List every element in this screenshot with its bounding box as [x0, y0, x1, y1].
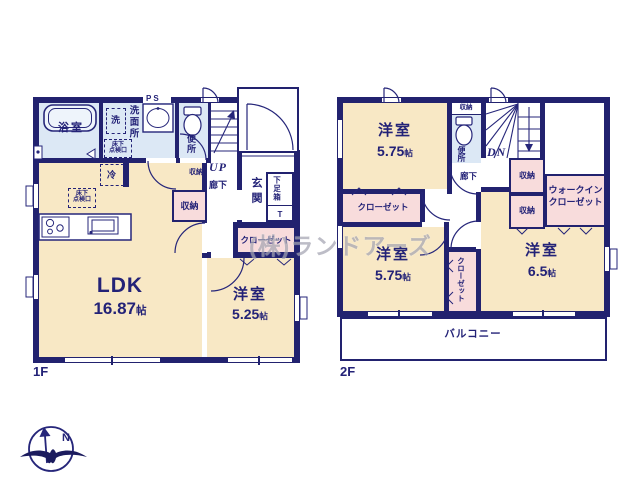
watermark: (株)ランドアーズ — [249, 227, 432, 261]
wall — [444, 222, 449, 317]
toilet-label-2f: 便所 — [457, 146, 465, 162]
bedroom-nw-size: 5.75帖 — [345, 144, 445, 158]
window — [489, 97, 508, 103]
stairs-up-label: UP — [209, 161, 227, 173]
floor-label-2f: 2F — [340, 365, 355, 378]
window — [33, 184, 39, 208]
underfloor-hatch-label: 床下点検口 — [68, 191, 96, 203]
door-opening — [237, 190, 242, 220]
wall — [99, 103, 103, 158]
window — [604, 247, 610, 271]
wic-label-line1: ウォークイン — [545, 186, 606, 195]
window — [65, 357, 160, 363]
hallway-label-2f: 廊下 — [460, 172, 477, 181]
storage-a-label: 収納 — [509, 172, 545, 180]
shoebox-label: 下足箱 — [273, 176, 281, 202]
understairs-storage-label: 収納 — [189, 169, 203, 176]
door-opening — [146, 158, 176, 163]
door-opening — [211, 252, 233, 258]
hallway-label-1f: 廊下 — [209, 181, 227, 190]
washroom-label: 洗面所 — [128, 105, 138, 140]
door-opening — [180, 158, 206, 163]
ps-label: PS — [146, 95, 161, 103]
underfloor-hatch-label: 床下点検口 — [104, 142, 132, 154]
bird-logo-icon — [20, 449, 87, 463]
bedroom-nw-name: 洋室 — [345, 123, 445, 138]
bedroom-1f-size: 5.25帖 — [200, 307, 300, 321]
wic-label-line2: クローゼット — [545, 198, 606, 207]
bedroom-se-name: 洋室 — [492, 243, 592, 258]
floor-label-1f: 1F — [33, 365, 48, 378]
ldk-size: 16.87帖 — [50, 300, 190, 317]
toilet-label-1f: 便所 — [186, 134, 195, 154]
stairs-down-label: DN — [487, 146, 506, 158]
wall — [33, 97, 39, 363]
window — [337, 120, 343, 158]
window — [33, 275, 39, 299]
floorplan-canvas: N 浴室 洗 洗面所 PS 床下点検口 便所 UP 収納 廊下 玄関 下足箱 T… — [0, 0, 640, 480]
balcony-label: バルコニー — [373, 329, 573, 340]
entrance-porch — [237, 87, 299, 153]
wall — [447, 103, 452, 189]
storage-b-label: 収納 — [509, 207, 545, 215]
bedroom-se-size: 6.5帖 — [492, 264, 592, 278]
closet-mid-label: クローゼット — [457, 257, 465, 302]
wall — [175, 103, 179, 158]
wall — [481, 103, 486, 158]
window — [382, 97, 401, 103]
window — [228, 357, 292, 363]
wall — [208, 103, 211, 158]
stairs-up-icon — [211, 110, 237, 153]
compass-icon: N — [20, 427, 87, 471]
washer-label: 洗 — [111, 116, 120, 125]
storage-label-1f: 収納 — [172, 202, 207, 211]
wall — [476, 247, 481, 311]
bedroom-1f-name: 洋室 — [200, 287, 300, 302]
storage-over-toilet-label: 収納 — [452, 105, 480, 112]
bedroom-sw-size: 5.75帖 — [343, 268, 443, 282]
shoebox-t-label: T — [266, 211, 294, 219]
bathroom-label: 浴室 — [49, 123, 93, 134]
door-opening — [476, 222, 481, 249]
window — [201, 97, 219, 103]
ldk-name: LDK — [50, 275, 190, 296]
compass-north-label: N — [62, 432, 70, 444]
closet-nw-label: クローゼット — [343, 203, 423, 212]
door-opening — [202, 223, 207, 253]
fridge-label: 冷 — [107, 171, 116, 180]
door-opening — [425, 189, 447, 194]
entrance-label: 玄関 — [250, 177, 261, 207]
